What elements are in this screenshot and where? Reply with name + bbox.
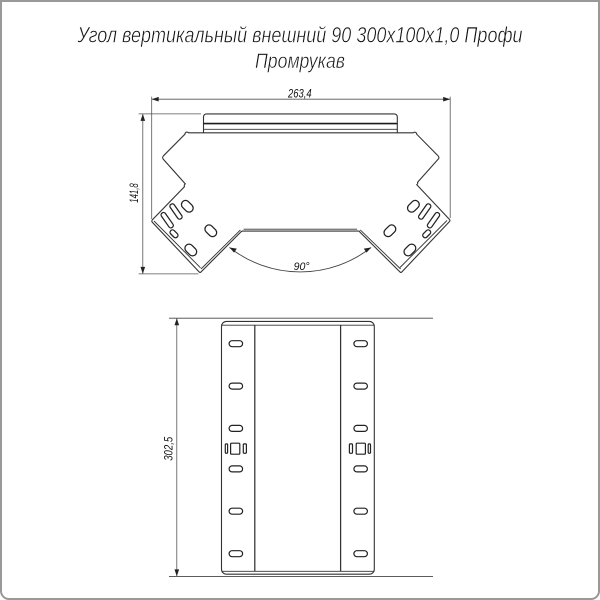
svg-text:141,8: 141,8 xyxy=(127,183,141,203)
svg-text:302,5: 302,5 xyxy=(162,437,176,461)
svg-text:Угол вертикальный внешний 90 3: Угол вертикальный внешний 90 300х100х1,0… xyxy=(77,23,523,48)
svg-text:90°: 90° xyxy=(294,261,311,273)
svg-text:263,4: 263,4 xyxy=(287,86,312,100)
svg-text:Промрукав: Промрукав xyxy=(255,49,345,73)
